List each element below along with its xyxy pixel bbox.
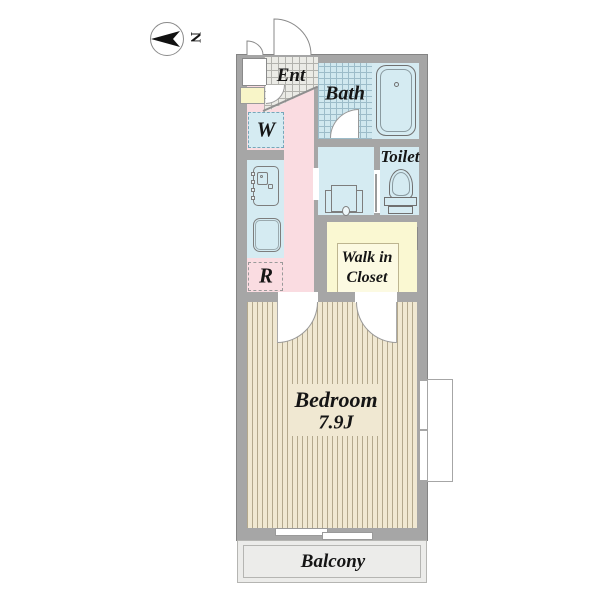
toilet-door-leaf xyxy=(375,174,377,212)
balcony-window-pane xyxy=(322,532,373,540)
stove-dot-icon xyxy=(268,184,273,189)
washbasin-drain-icon xyxy=(342,206,350,216)
walk-in-closet-label-line2: Closet xyxy=(347,269,388,287)
toilet-base-icon xyxy=(388,206,413,214)
refrigerator-label: R xyxy=(259,264,273,289)
kitchen-sink-basin-icon xyxy=(255,220,279,250)
washroom-door-opening xyxy=(313,168,319,200)
side-window-pane xyxy=(420,381,427,429)
stove-knob-icon xyxy=(251,172,255,176)
stove-dot-icon xyxy=(260,175,263,178)
floor-plan: N Ent W R Bath Toilet xyxy=(0,0,600,600)
shoe-cabinet xyxy=(240,87,265,104)
balcony-label: Balcony xyxy=(301,551,365,573)
washer-label: W xyxy=(257,118,276,143)
compass-circle xyxy=(150,22,184,56)
toilet-label: Toilet xyxy=(380,147,419,167)
stove-knob-icon xyxy=(251,188,255,192)
balcony-window-pane xyxy=(275,528,328,536)
stove-knob-icon xyxy=(251,180,255,184)
bath-label: Bath xyxy=(325,83,365,106)
stove-knob-icon xyxy=(251,196,255,200)
bathtub-drain-icon xyxy=(394,82,399,87)
entrance-door-arc-icon xyxy=(240,14,330,59)
toilet-bowl-inner-icon xyxy=(392,172,410,196)
meter-box xyxy=(242,58,267,86)
wall-stub xyxy=(247,150,284,160)
entrance-label: Ent xyxy=(277,65,306,87)
compass-north-label: N xyxy=(185,32,203,48)
bedroom-size-label: 7.9J xyxy=(319,412,354,435)
bathtub-inner-icon xyxy=(380,69,412,132)
bedroom-label: Bedroom xyxy=(294,387,377,413)
window-ledge xyxy=(427,379,453,482)
walk-in-closet-label-line1: Walk in xyxy=(342,249,393,267)
toilet-tank-icon xyxy=(384,197,417,206)
side-window-pane xyxy=(420,431,427,480)
stove-burner-icon xyxy=(257,172,268,185)
